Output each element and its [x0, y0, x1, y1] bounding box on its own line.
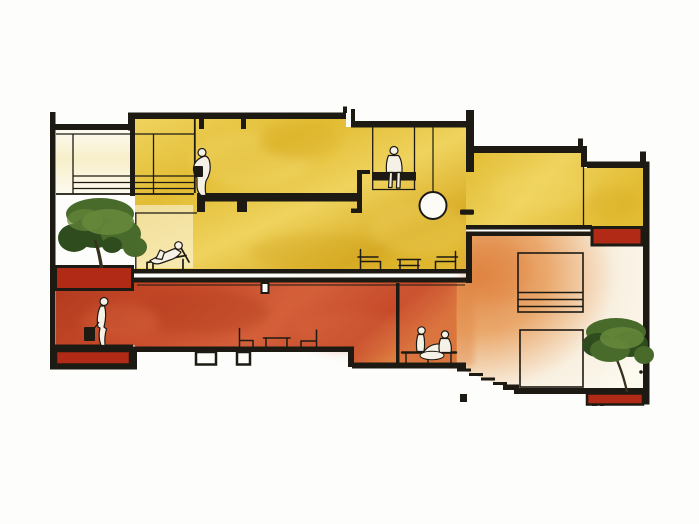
section-drawing-canvas — [0, 0, 699, 524]
balcony-figure-bag — [194, 166, 203, 177]
bench-room-floor — [352, 363, 466, 369]
lower-left-floor — [53, 345, 133, 351]
wing-roof — [474, 146, 584, 153]
wing-slab-bottom — [466, 232, 592, 237]
left-terrace-planter — [56, 267, 133, 290]
stair-tread-1 — [457, 369, 471, 372]
left-tree-foliage — [58, 198, 147, 257]
wing-lower-planter — [587, 394, 643, 405]
upper-slab — [197, 193, 360, 202]
bench-room-wall — [396, 283, 400, 364]
door-wall-foot-right — [362, 170, 370, 174]
building-section-svg — [0, 0, 699, 524]
right-wall — [643, 162, 650, 405]
roof-stub-a — [199, 119, 204, 129]
roof-stub-b — [241, 119, 246, 129]
door-wall-stub — [357, 170, 362, 213]
ceiling-wall-stub — [262, 283, 269, 293]
mid-right-wall-block — [466, 110, 474, 172]
stair-tread-3 — [481, 378, 495, 381]
roof-left-low — [53, 124, 130, 130]
pendant-lamp-globe — [420, 192, 447, 219]
walking-figure-bag — [84, 327, 95, 341]
wing-upper-planter — [592, 228, 642, 246]
wing-slab-top — [466, 225, 592, 230]
wing-roof-low — [587, 162, 645, 169]
wing-parapet-lip — [578, 139, 583, 147]
wing-roof-step — [581, 146, 587, 167]
roof-joint-lip-b — [351, 109, 355, 122]
foundation-pier-2 — [237, 352, 250, 365]
roof-high — [131, 113, 346, 120]
wall-dash-handle — [460, 210, 474, 215]
foundation-pier-1 — [196, 352, 216, 365]
roof-mid — [351, 121, 474, 128]
lower-left-planter — [56, 351, 130, 365]
pendant-lamp — [420, 192, 447, 219]
upper-left-bay-wash — [56, 130, 130, 194]
wing-doorway-header — [466, 236, 472, 283]
left-courtyard-tree — [58, 198, 147, 268]
roof-joint-lip-a — [343, 107, 347, 114]
foundation-tick — [460, 394, 467, 402]
mid-slab-bottom — [133, 278, 472, 283]
upper-slab-downstand — [237, 201, 247, 212]
bench-drape — [420, 351, 444, 359]
left-wall — [50, 112, 56, 368]
bay-divider-wall — [130, 119, 135, 197]
stair-tread-2 — [469, 373, 483, 376]
right-tree-dot — [639, 370, 643, 374]
door-wall-foot-left — [351, 209, 357, 214]
mezzanine-floor — [372, 172, 416, 181]
